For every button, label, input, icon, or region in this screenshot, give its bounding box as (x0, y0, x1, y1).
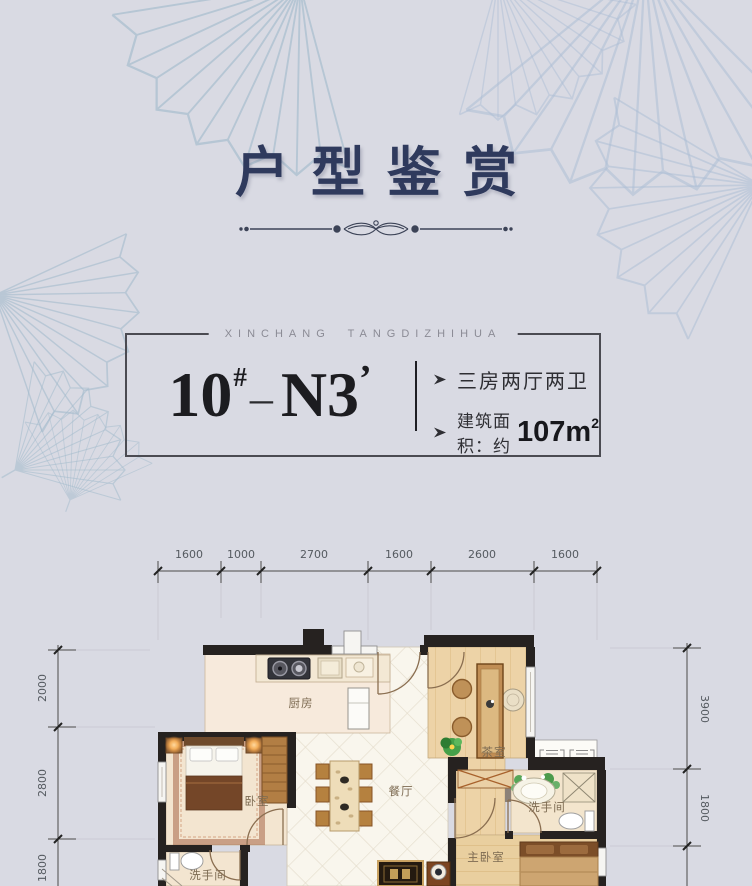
kitchen-flue-box (344, 631, 361, 654)
dimension-chain-top: 1600 1000 2700 1600 2600 1600 (154, 548, 601, 640)
feature-area-sup: 2 (591, 415, 599, 431)
svg-text:2000: 2000 (36, 674, 49, 702)
bedroom-label: 卧室 (245, 794, 270, 808)
bedside-lamp (165, 736, 183, 754)
floor-plan: 1600 1000 2700 1600 2600 1600 2000 2800 … (0, 525, 752, 886)
bedside-lamp (245, 736, 263, 754)
unit-block-number: 10 (168, 363, 232, 427)
unit-hash-mark: # (233, 362, 247, 393)
bathroom-right-label: 洗手间 (528, 800, 566, 814)
pillow (216, 748, 238, 761)
plate (340, 804, 349, 811)
tea-room-label: 茶室 (482, 745, 507, 759)
dining-chair (359, 811, 372, 826)
master-bedroom-label: 主卧室 (467, 850, 505, 864)
poster-page: 户型鉴赏 XINCHANG TANGDIZHIHUA 10#–N3’ (0, 0, 752, 886)
svg-text:1600: 1600 (385, 548, 413, 561)
bed-headboard (184, 737, 244, 746)
unit-type: N3 (281, 363, 359, 427)
feature-area-prefix: 建筑面积：约 (457, 407, 517, 457)
svg-text:2700: 2700 (300, 548, 328, 561)
dining-label: 餐厅 (389, 784, 414, 798)
master-bedroom-furniture (520, 842, 598, 886)
arrow-bullet-icon (433, 372, 448, 387)
pillow (190, 748, 212, 761)
pillow (526, 845, 554, 854)
unit-prime-mark: ’ (359, 357, 372, 401)
svg-text:1600: 1600 (175, 548, 203, 561)
dining-chair (316, 764, 329, 779)
tea-chair (453, 718, 472, 737)
svg-text:2800: 2800 (36, 769, 49, 797)
svg-text:2600: 2600 (468, 548, 496, 561)
kitchen-label: 厨房 (289, 696, 314, 710)
toilet (181, 853, 203, 870)
arrow-bullet-icon (433, 425, 448, 440)
bathroom-left-label: 洗手间 (189, 868, 227, 882)
svg-text:1000: 1000 (227, 548, 255, 561)
feature-area-value: 107m (517, 416, 591, 449)
unit-features: 三房两厅两卫 建筑面积：约107m2 (433, 365, 599, 470)
round-chair (502, 689, 524, 711)
dimension-chain-right: 3900 1800 (610, 643, 711, 886)
dining-chair (316, 811, 329, 826)
dimension-chain-left: 2000 2800 1800 (36, 645, 155, 886)
chimney-flue (303, 629, 324, 655)
pillow (560, 845, 588, 854)
toilet (559, 813, 583, 829)
feature-rooms-text: 三房两厅两卫 (457, 365, 589, 394)
entry-area (378, 861, 450, 886)
fridge (348, 688, 369, 729)
unit-info-card: XINCHANG TANGDIZHIHUA 10#–N3’ 三房两厅两卫 建筑面… (125, 333, 601, 457)
svg-text:1800: 1800 (698, 794, 711, 822)
ornamental-divider (236, 218, 516, 245)
dining-chair (359, 787, 372, 802)
hall-cabinet (458, 770, 513, 788)
page-title: 户型鉴赏 (0, 128, 752, 207)
unit-code: 10#–N3’ (127, 335, 413, 455)
feature-area: 建筑面积：约107m2 (433, 407, 599, 457)
bathroom-left-window (158, 860, 166, 880)
dining-set (316, 761, 372, 831)
unit-dash: – (250, 371, 273, 424)
dining-chair (316, 787, 329, 802)
card-divider-line (415, 361, 417, 431)
bed-blanket (186, 776, 242, 810)
dining-table (330, 761, 359, 831)
svg-text:1800: 1800 (36, 854, 49, 882)
tea-chair (453, 680, 472, 699)
plate (340, 777, 349, 784)
feature-rooms: 三房两厅两卫 (433, 365, 599, 394)
svg-text:1600: 1600 (551, 548, 579, 561)
svg-text:3900: 3900 (698, 695, 711, 723)
dining-chair (359, 764, 372, 779)
